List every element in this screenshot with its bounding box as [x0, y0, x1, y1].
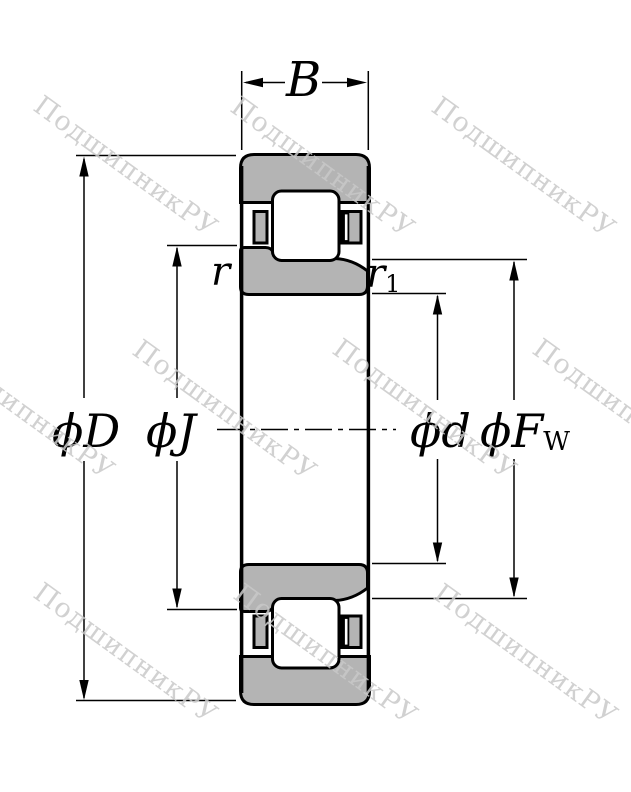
raceway-label-main: ϕF — [480, 404, 545, 458]
dim-label-outer-diameter: ϕD — [52, 404, 120, 458]
raceway-label-subscript: W — [543, 427, 570, 457]
dim-label-width: B — [285, 52, 321, 108]
arrow-width-right — [347, 78, 367, 87]
dim-label-inner-chamfer: r1 — [366, 251, 400, 298]
cage-bar-right-slot — [344, 214, 348, 242]
bearing-drawing-canvas: B ϕD ϕJ ϕd ϕFW r r1 ПодшипникРУПодшипник… — [0, 0, 631, 792]
roller — [273, 191, 340, 261]
arrow-raceway-dia-down — [509, 578, 518, 598]
arrow-width-left — [243, 78, 263, 87]
arrow-outer-dia-up — [79, 157, 88, 177]
dim-label-flange-diameter: ϕJ — [146, 404, 198, 458]
arrow-outer-dia-down — [79, 680, 88, 700]
dim-label-bore-diameter: ϕd — [410, 404, 471, 458]
bearing-cross-section-diagram: B ϕD ϕJ ϕd ϕFW r r1 — [0, 0, 631, 792]
arrow-raceway-dia-up — [509, 261, 518, 281]
inner-chamfer-subscript: 1 — [385, 270, 400, 298]
arrow-bore-dia-up — [433, 295, 442, 315]
arrow-bore-dia-down — [433, 543, 442, 563]
dim-label-raceway-diameter: ϕFW — [480, 404, 570, 458]
bearing-section-top — [241, 155, 370, 295]
cage-bar-left — [254, 212, 267, 244]
arrow-flange-dia-up — [172, 247, 181, 267]
arrow-flange-dia-down — [172, 589, 181, 609]
dim-label-outer-chamfer: r — [211, 249, 233, 295]
bearing-section-bottom — [241, 565, 370, 705]
